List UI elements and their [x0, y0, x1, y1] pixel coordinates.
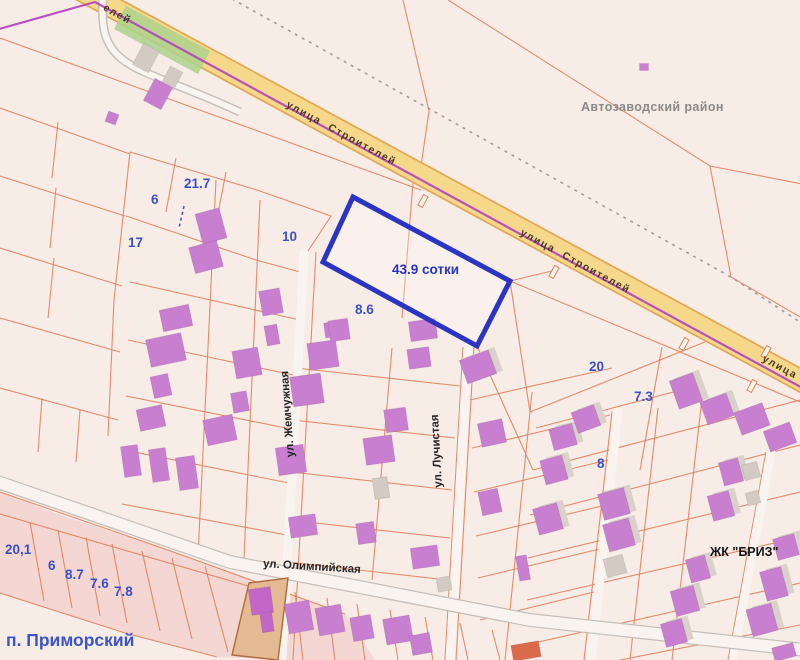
parcel-line	[130, 152, 331, 254]
road-entrance-mark	[418, 195, 428, 208]
building	[195, 208, 227, 244]
building	[175, 455, 198, 490]
building	[549, 423, 578, 450]
building	[120, 444, 141, 477]
building	[741, 461, 761, 481]
building	[307, 340, 339, 371]
building	[407, 347, 432, 370]
building	[150, 373, 172, 398]
building	[136, 405, 166, 432]
building	[350, 614, 375, 641]
building	[384, 407, 409, 433]
building	[372, 477, 390, 500]
building	[145, 333, 186, 368]
parcel-line	[510, 281, 530, 412]
parcel-line	[244, 200, 260, 558]
parcel-line	[0, 318, 120, 352]
boundary-line-dashed	[225, 0, 800, 326]
building	[290, 373, 325, 407]
parcel-line	[76, 410, 80, 462]
parcel-line	[527, 537, 800, 600]
building	[436, 576, 452, 592]
building	[315, 604, 345, 636]
parcel-line	[710, 166, 800, 318]
building	[189, 240, 224, 274]
parcel-line	[166, 158, 176, 212]
parcel-line	[52, 122, 58, 178]
parcel-line	[640, 347, 662, 470]
parcel-line	[0, 388, 118, 420]
building	[410, 545, 440, 570]
parcel-line	[0, 248, 122, 286]
building	[363, 435, 395, 466]
parcel-line	[403, 0, 429, 166]
building	[382, 615, 413, 645]
building	[640, 64, 649, 71]
building	[288, 514, 318, 539]
building	[284, 600, 314, 634]
parcel-line	[50, 188, 56, 248]
building	[232, 347, 262, 379]
parcel-line	[0, 176, 125, 216]
parcel-line	[492, 630, 500, 660]
road-entrance-mark	[549, 266, 559, 279]
building	[264, 324, 280, 346]
parcel-line	[460, 623, 468, 660]
building	[477, 419, 506, 448]
building	[511, 641, 541, 660]
building	[328, 318, 351, 342]
measure-tick	[179, 206, 184, 228]
building	[258, 288, 283, 316]
building	[203, 414, 238, 446]
parcel-line	[293, 420, 455, 438]
map-canvas[interactable]: елей улица Строителей улица Строителей у…	[0, 0, 800, 660]
building	[275, 444, 307, 476]
map-graphics	[0, 0, 800, 660]
building	[105, 111, 119, 125]
building	[260, 611, 275, 632]
road-entrance-mark	[747, 380, 757, 393]
building	[230, 391, 249, 413]
parcel-line	[448, 0, 800, 184]
building	[745, 490, 761, 506]
parcel-line	[478, 548, 604, 578]
building	[515, 555, 530, 582]
building	[356, 521, 377, 544]
parcel-line	[48, 258, 54, 318]
parcel-line	[291, 472, 452, 490]
building	[478, 488, 503, 516]
building	[159, 304, 193, 332]
parcel-line	[38, 398, 42, 452]
building	[409, 632, 432, 655]
building	[148, 447, 169, 482]
parcel-line	[108, 152, 130, 436]
